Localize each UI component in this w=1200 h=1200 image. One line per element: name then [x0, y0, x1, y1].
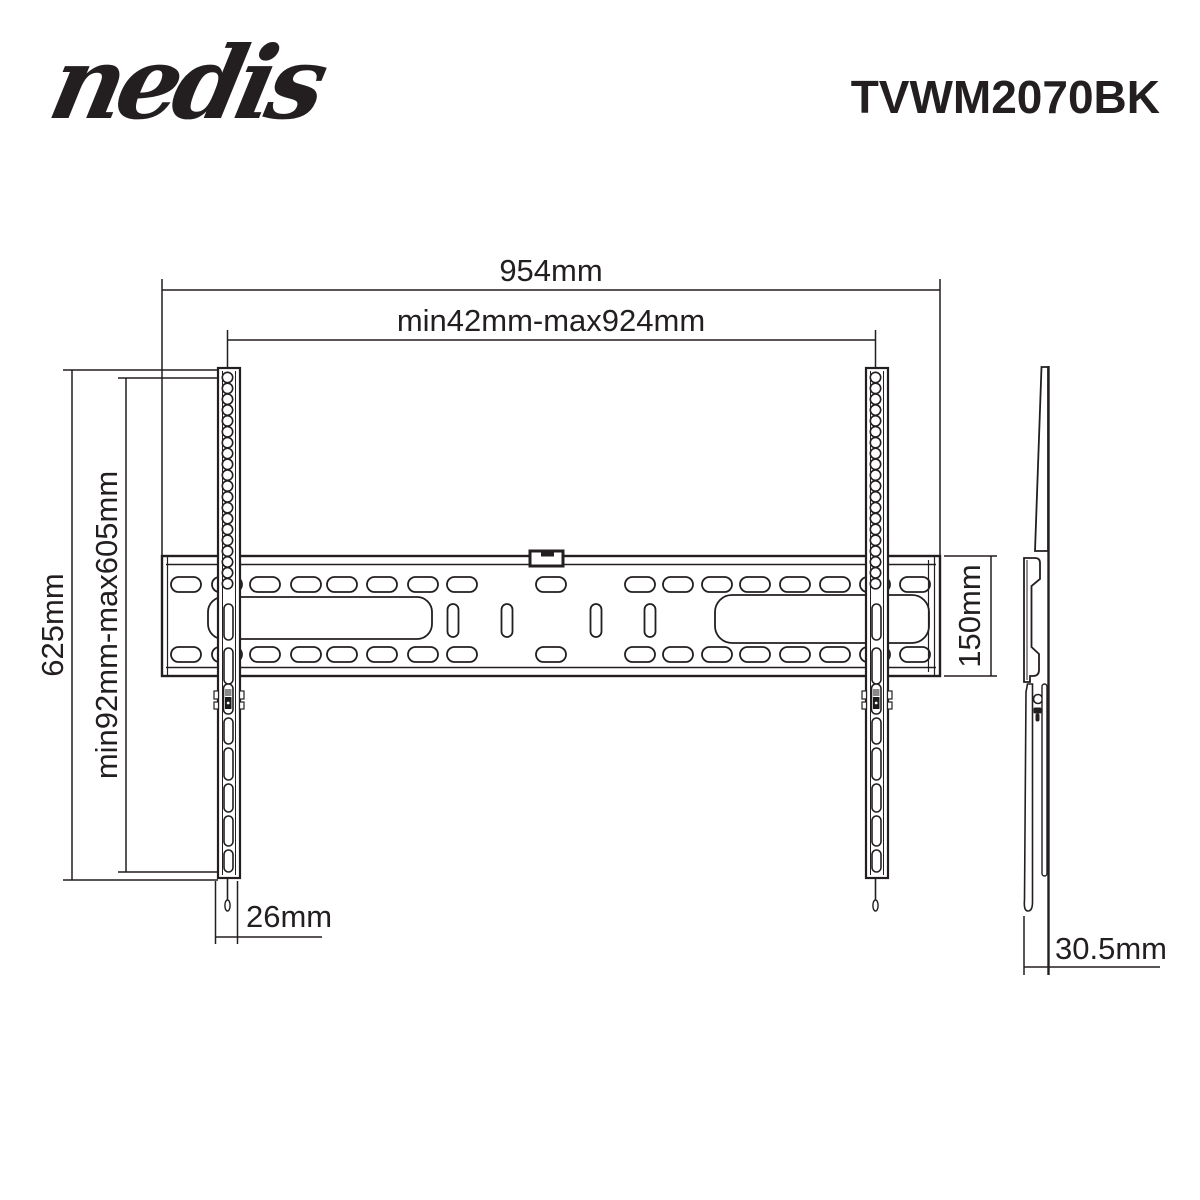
dim-mount-width-range: min42mm-max924mm	[228, 303, 876, 368]
dim-overall-width-label: 954mm	[499, 253, 602, 288]
level-tab	[530, 551, 563, 566]
dim-depth-label: 30.5mm	[1055, 931, 1167, 966]
wall-plate	[162, 551, 940, 676]
dim-mount-height-range-label: min92mm-max605mm	[89, 471, 124, 779]
dim-wall-plate-height: 150mm	[944, 556, 997, 676]
dim-rail-width: 26mm	[215, 881, 332, 944]
side-view: 30.5mm	[1024, 366, 1167, 975]
dim-rail-width-label: 26mm	[246, 899, 332, 934]
side-lock-screw	[1034, 708, 1042, 722]
dim-wall-plate-height-label: 150mm	[952, 564, 987, 667]
dim-depth: 30.5mm	[1024, 916, 1167, 975]
side-upper-rail-profile	[1035, 367, 1048, 551]
tv-rail-right	[862, 368, 892, 911]
side-rail-slot-profile	[1042, 684, 1047, 876]
dim-overall-height-label: 625mm	[35, 573, 70, 676]
side-screw-hole	[1034, 695, 1043, 704]
technical-drawing: 954mm min42mm-max924mm 625mm	[0, 0, 1200, 1200]
front-view: 954mm min42mm-max924mm 625mm	[35, 253, 997, 944]
page: nedis TVWM2070BK 954mm min42mm-max924mm	[0, 0, 1200, 1200]
dim-mount-width-range-label: min42mm-max924mm	[397, 303, 705, 338]
side-wall-plate-profile	[1024, 558, 1040, 682]
dim-overall-width: 954mm	[162, 253, 940, 556]
tv-rail-left	[214, 368, 244, 911]
side-lower-rail-profile	[1024, 684, 1032, 911]
